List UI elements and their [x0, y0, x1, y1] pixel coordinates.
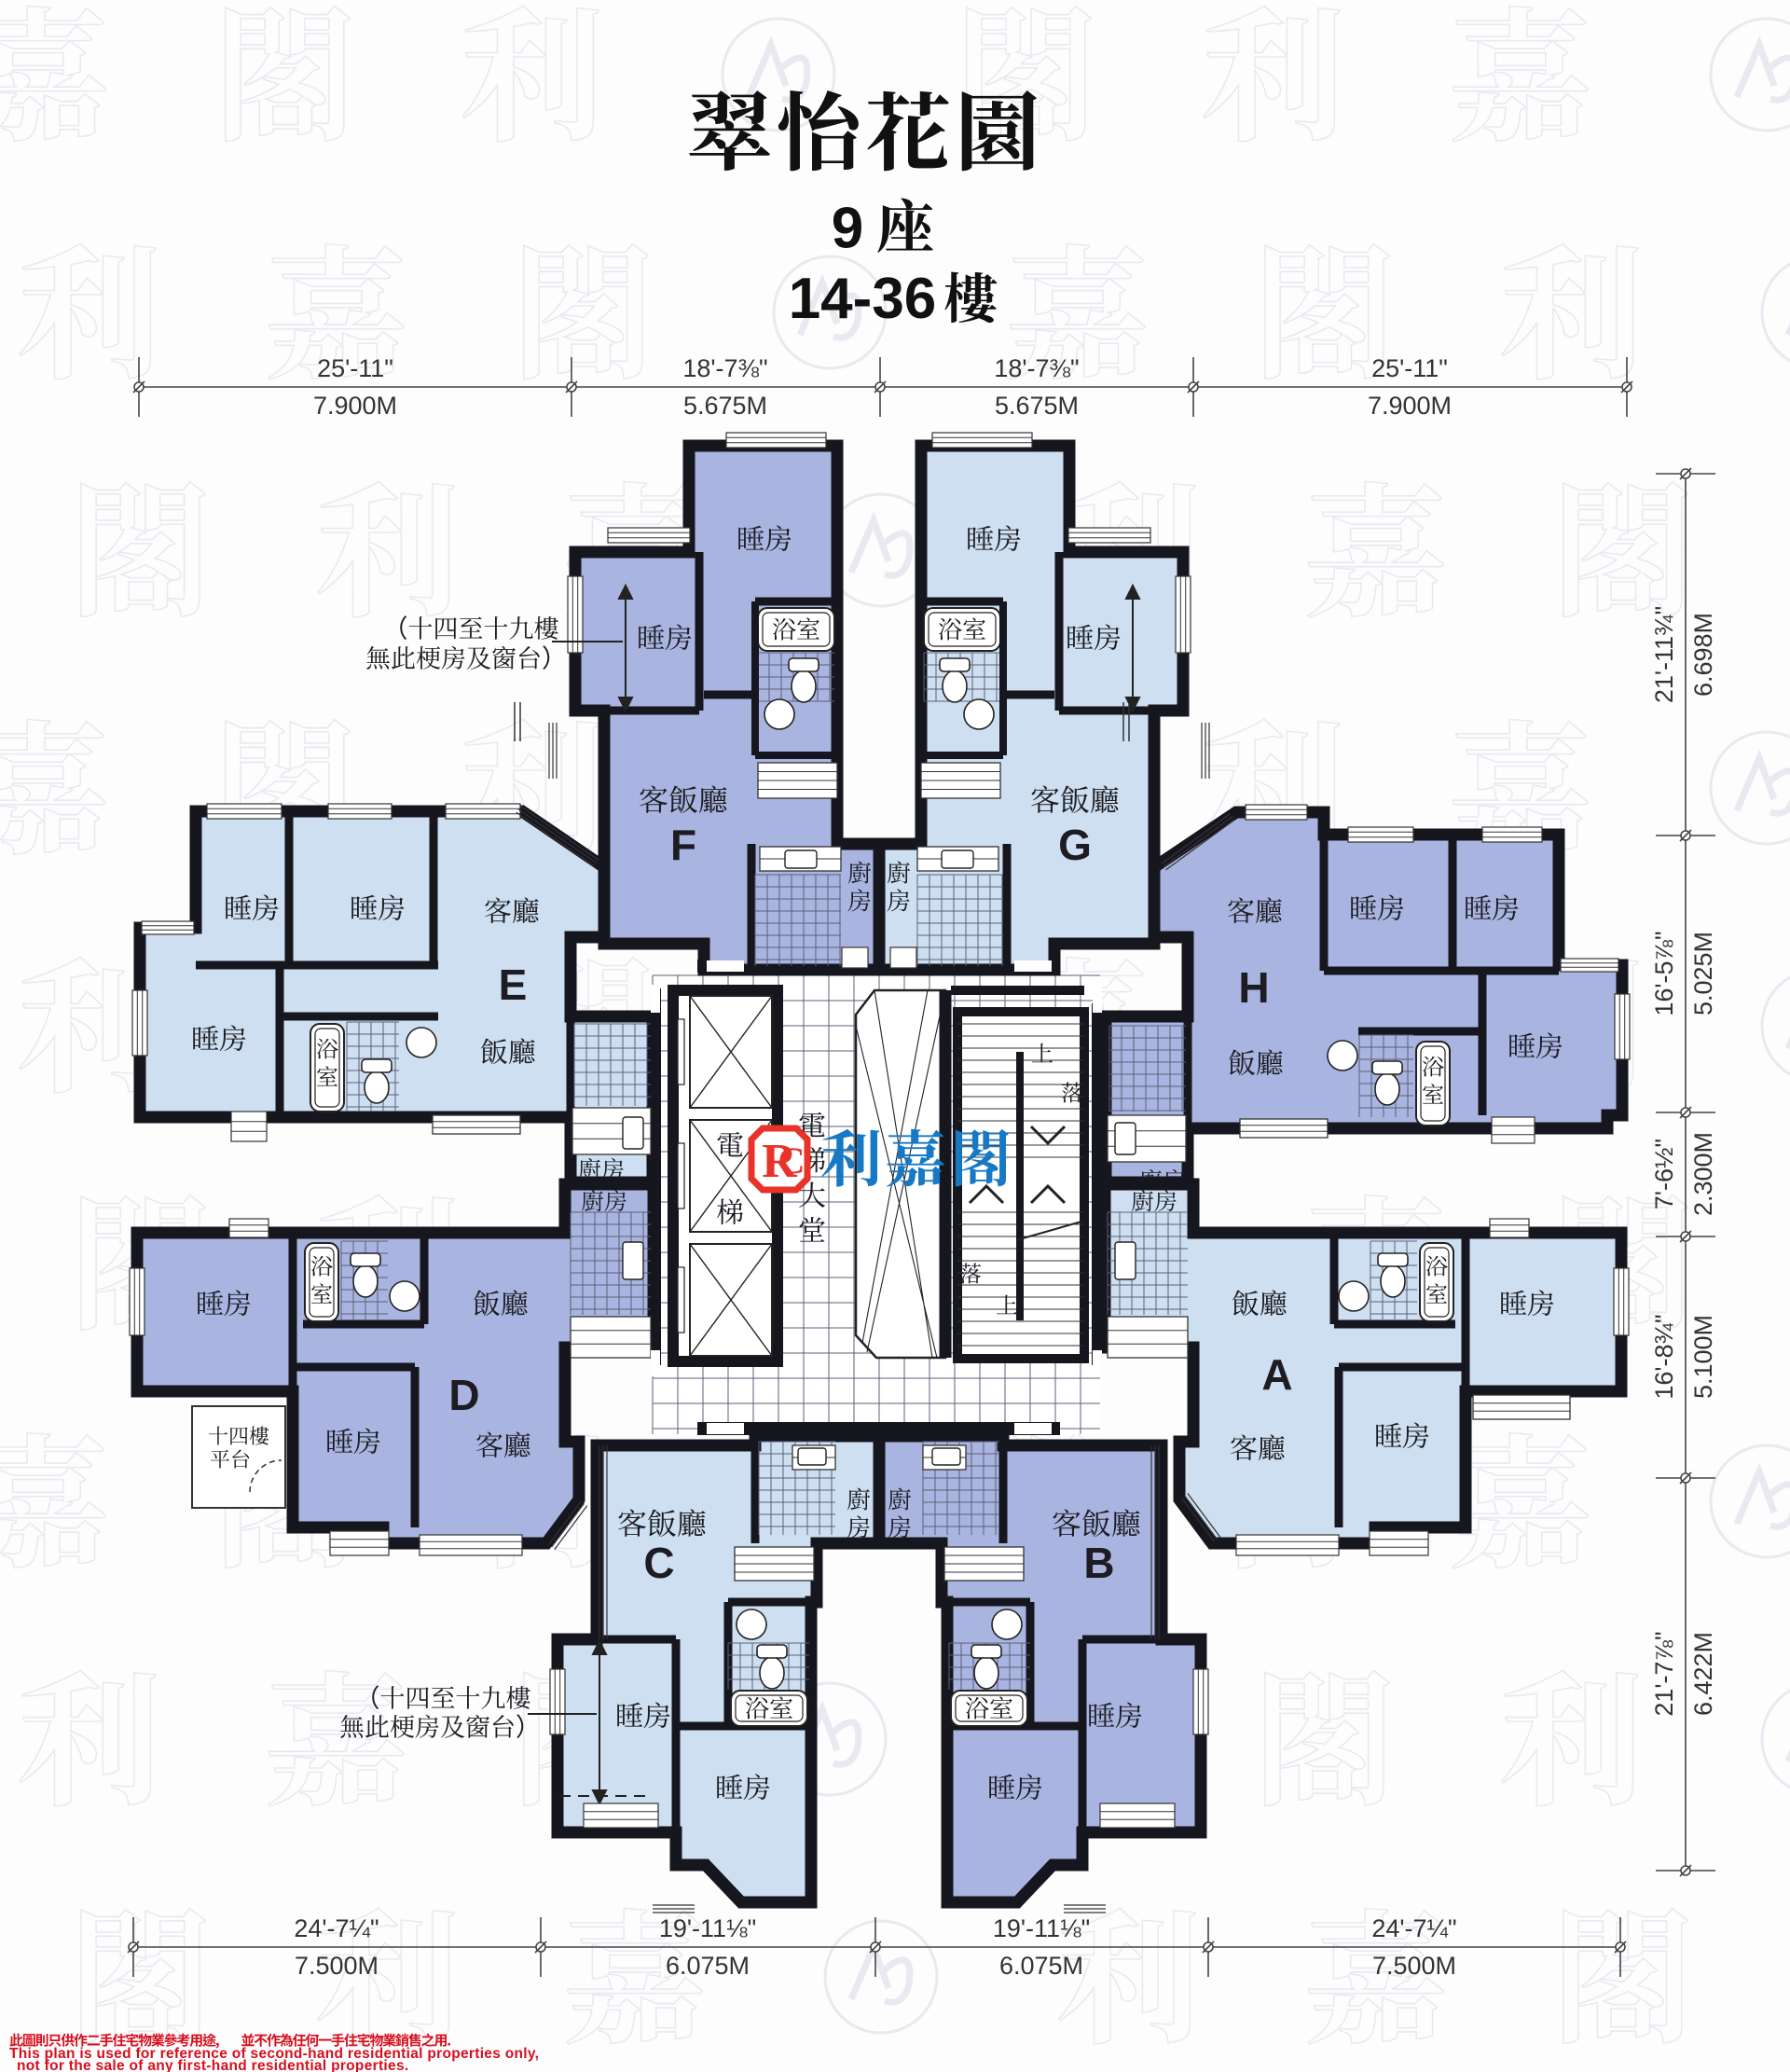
- svg-text:5.675M: 5.675M: [995, 392, 1079, 420]
- svg-text:B: B: [1083, 1539, 1114, 1587]
- svg-text:A: A: [1261, 1350, 1292, 1399]
- svg-text:6.422M: 6.422M: [1689, 1632, 1717, 1716]
- svg-text:C: C: [778, 1140, 805, 1181]
- svg-text:24'-7¼": 24'-7¼": [1371, 1914, 1456, 1942]
- svg-text:18'-7⅜": 18'-7⅜": [994, 354, 1079, 382]
- svg-text:19'-11⅛": 19'-11⅛": [659, 1914, 756, 1942]
- svg-text:5.025M: 5.025M: [1689, 932, 1717, 1015]
- svg-text:not for the sale of any first-: not for the sale of any first-hand resid…: [17, 2058, 408, 2072]
- svg-text:2.300M: 2.300M: [1689, 1132, 1717, 1216]
- svg-text:7.900M: 7.900M: [313, 392, 397, 420]
- svg-text:21'-7⅞": 21'-7⅞": [1650, 1631, 1678, 1716]
- svg-text:G: G: [1058, 821, 1092, 869]
- svg-text:）: ）: [542, 645, 567, 673]
- svg-text:7.500M: 7.500M: [1372, 1952, 1456, 1980]
- svg-text:24'-7¼": 24'-7¼": [294, 1914, 379, 1942]
- svg-text:25'-11": 25'-11": [1371, 354, 1448, 382]
- svg-text:（: （: [355, 1685, 380, 1713]
- svg-text:7.900M: 7.900M: [1368, 392, 1452, 420]
- svg-text:21'-11¾": 21'-11¾": [1650, 606, 1678, 703]
- svg-text:7.500M: 7.500M: [295, 1952, 379, 1980]
- svg-text:16'-8¾": 16'-8¾": [1650, 1314, 1678, 1399]
- svg-text:6.698M: 6.698M: [1689, 613, 1717, 697]
- svg-text:16'-5⅞": 16'-5⅞": [1650, 931, 1678, 1015]
- svg-text:C: C: [643, 1539, 674, 1587]
- svg-text:5.100M: 5.100M: [1689, 1315, 1717, 1399]
- svg-text:19'-11⅛": 19'-11⅛": [993, 1914, 1090, 1942]
- svg-text:25'-11": 25'-11": [317, 354, 393, 382]
- svg-text:（: （: [383, 615, 408, 643]
- svg-text:H: H: [1238, 963, 1269, 1012]
- svg-text:E: E: [499, 960, 528, 1009]
- svg-text:）: ）: [516, 1714, 541, 1742]
- svg-text:18'-7⅜": 18'-7⅜": [682, 354, 767, 382]
- svg-text:6.075M: 6.075M: [666, 1952, 750, 1980]
- svg-text:7'-6½": 7'-6½": [1650, 1139, 1678, 1209]
- svg-text:6.075M: 6.075M: [999, 1952, 1083, 1980]
- svg-text:9: 9: [832, 196, 863, 260]
- svg-text:D: D: [448, 1371, 479, 1419]
- svg-text:14-36: 14-36: [789, 267, 937, 331]
- svg-text:F: F: [670, 821, 696, 869]
- svg-text:5.675M: 5.675M: [683, 392, 767, 420]
